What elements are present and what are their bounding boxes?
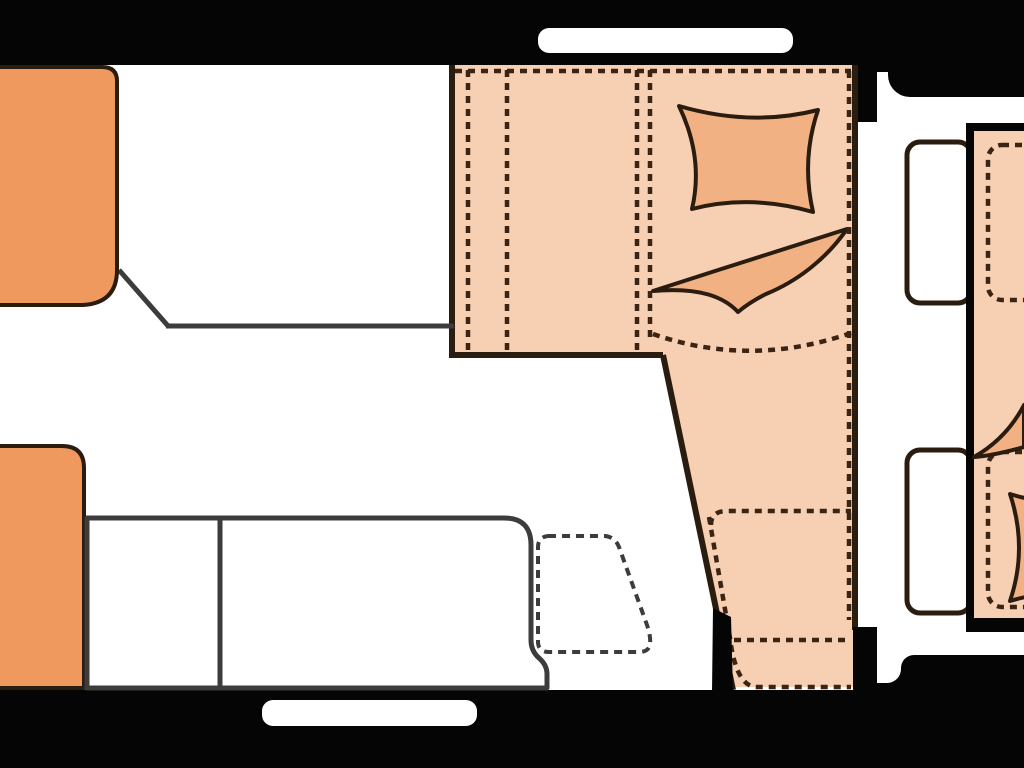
wall-wedge xyxy=(712,608,733,692)
window-right-lower xyxy=(907,450,971,613)
floorplan-canvas xyxy=(0,0,1024,768)
caravan-floorplan-svg xyxy=(0,0,1024,768)
window-bottom xyxy=(262,700,477,726)
bed-pillow xyxy=(679,106,818,212)
window-top xyxy=(538,28,793,53)
cabinet-block-bottom-left xyxy=(0,446,84,688)
wall-block-bottom-right xyxy=(853,627,877,693)
kitchen-counter xyxy=(87,518,547,688)
wardrobe-block-top-left xyxy=(0,67,117,305)
front-section-bed-surface xyxy=(974,131,1024,618)
window-right-upper xyxy=(907,142,971,303)
